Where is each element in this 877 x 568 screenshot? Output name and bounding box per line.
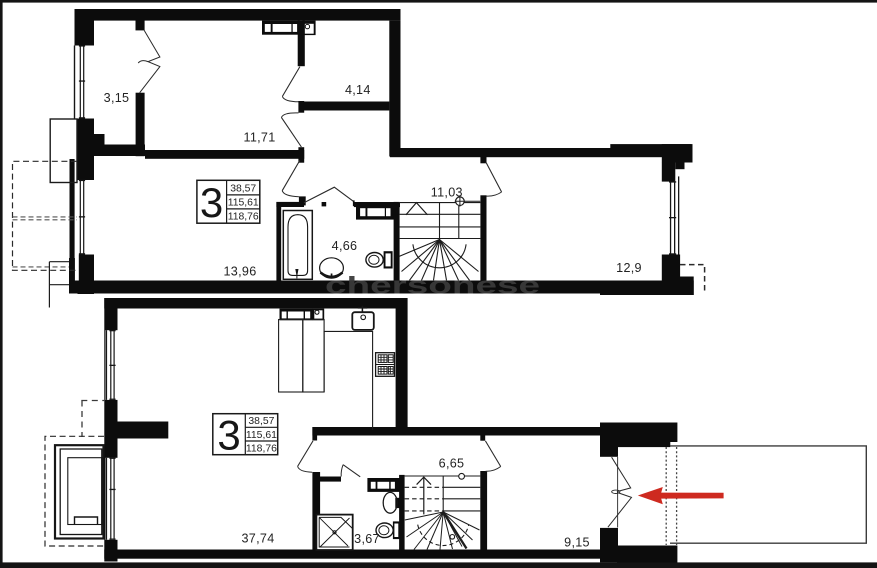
svg-text:37,74: 37,74 [241, 531, 274, 545]
svg-text:118,76: 118,76 [228, 212, 259, 223]
svg-text:13,96: 13,96 [223, 264, 256, 278]
svg-text:3,67: 3,67 [354, 532, 380, 546]
svg-text:6,65: 6,65 [439, 456, 465, 470]
svg-text:9,15: 9,15 [564, 536, 590, 550]
svg-text:3: 3 [200, 179, 223, 226]
svg-text:4,14: 4,14 [345, 83, 371, 97]
svg-text:3: 3 [217, 412, 240, 459]
svg-text:11,03: 11,03 [431, 185, 463, 199]
svg-text:115,61: 115,61 [228, 197, 259, 208]
svg-text:3,15: 3,15 [104, 91, 130, 105]
svg-text:118,76: 118,76 [246, 444, 277, 455]
svg-text:4,66: 4,66 [332, 239, 358, 253]
svg-text:11,71: 11,71 [243, 130, 275, 144]
svg-text:chersonese: chersonese [325, 273, 540, 300]
svg-text:38,57: 38,57 [230, 183, 256, 194]
svg-text:38,57: 38,57 [248, 416, 274, 427]
svg-text:115,61: 115,61 [246, 430, 277, 441]
svg-text:12,9: 12,9 [616, 261, 642, 275]
